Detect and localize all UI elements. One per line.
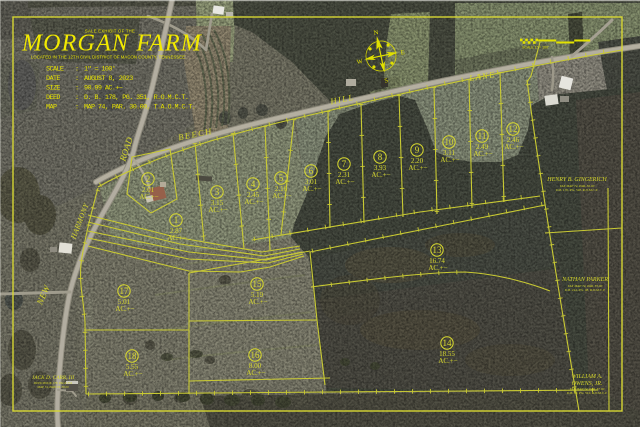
svg-text:NATHAN PARKER: NATHAN PARKER (561, 277, 608, 283)
svg-text:11: 11 (478, 131, 487, 141)
svg-text:90.99 AC.+−: 90.99 AC.+− (84, 85, 123, 93)
svg-text:SIZE: SIZE (46, 85, 60, 93)
svg-text::: : (75, 66, 78, 74)
svg-text:HENRY B. GINGERICH: HENRY B. GINGERICH (546, 177, 607, 183)
svg-text:SCALE 1″ = 100′: SCALE 1″ = 100′ (522, 46, 549, 50)
svg-text:AC.+−: AC.+− (473, 150, 492, 158)
svg-text:18: 18 (128, 351, 138, 361)
svg-text:6: 6 (309, 166, 314, 176)
svg-text:LOCATED IN THE 12TH CIVIL DIST: LOCATED IN THE 12TH CIVIL DISTRICT OF MA… (31, 55, 185, 60)
svg-text:AC.+−: AC.+− (371, 171, 390, 179)
svg-text:AC.+−: AC.+− (272, 192, 291, 200)
svg-text:12: 12 (509, 124, 518, 134)
svg-text:D. B. 178, PG. 351, R.O.M.C.T.: D. B. 178, PG. 351, R.O.M.C.T. (84, 94, 188, 102)
svg-text:17: 17 (120, 286, 130, 296)
svg-text:16: 16 (251, 350, 261, 360)
svg-text:MAP 74, PAR. 30.00, T.A.O.M.C.: MAP 74, PAR. 30.00, T.A.O.M.C.T. (84, 104, 195, 112)
svg-text:AC.+−: AC.+− (208, 206, 227, 214)
svg-text:SCALE: SCALE (46, 66, 64, 74)
svg-text:AC.+−: AC.+− (139, 193, 158, 201)
svg-text:2: 2 (146, 174, 151, 184)
svg-text:AC.+−: AC.+− (438, 357, 457, 365)
svg-text:AC.+−: AC.+− (440, 156, 459, 164)
svg-text:AC.+−: AC.+− (302, 185, 321, 193)
svg-text:AC.+−: AC.+− (408, 164, 427, 172)
svg-text:8: 8 (378, 152, 383, 162)
svg-text:AC.+−: AC.+− (123, 370, 142, 378)
svg-text:AC.+−: AC.+− (244, 198, 263, 206)
svg-text:AC.+−: AC.+− (248, 298, 267, 306)
svg-text:DATE: DATE (46, 75, 60, 83)
svg-text::: : (75, 85, 78, 93)
svg-text:DEED: DEED (46, 94, 60, 102)
svg-text:AC.+−: AC.+− (335, 178, 354, 186)
svg-text::: : (75, 75, 78, 83)
svg-text:AUGUST 8, 2023: AUGUST 8, 2023 (84, 75, 133, 83)
svg-text:7: 7 (342, 159, 347, 169)
svg-text:AC.+−: AC.+− (428, 264, 447, 272)
svg-text::: : (75, 104, 78, 112)
svg-text:AC.+−: AC.+− (115, 305, 134, 313)
svg-text:1: 1 (174, 215, 179, 225)
svg-text:9: 9 (415, 145, 420, 155)
svg-text:4: 4 (251, 179, 256, 189)
svg-text:AC.+−: AC.+− (504, 143, 523, 151)
svg-text::: : (75, 94, 78, 102)
svg-text:13: 13 (433, 245, 443, 255)
svg-text:MORGAN FARM: MORGAN FARM (21, 31, 203, 57)
svg-text:AC.+−: AC.+− (167, 234, 186, 242)
svg-text:1″ = 100′: 1″ = 100′ (84, 66, 115, 74)
svg-text:AC.+−: AC.+− (246, 369, 265, 377)
svg-text:10: 10 (445, 137, 455, 147)
svg-text:MAP: MAP (46, 104, 57, 112)
svg-text:WILLIAM A.: WILLIAM A. (572, 374, 603, 380)
svg-text:3: 3 (215, 187, 220, 197)
svg-text:14: 14 (443, 338, 453, 348)
svg-text:15: 15 (253, 279, 263, 289)
svg-text:5: 5 (279, 173, 284, 183)
